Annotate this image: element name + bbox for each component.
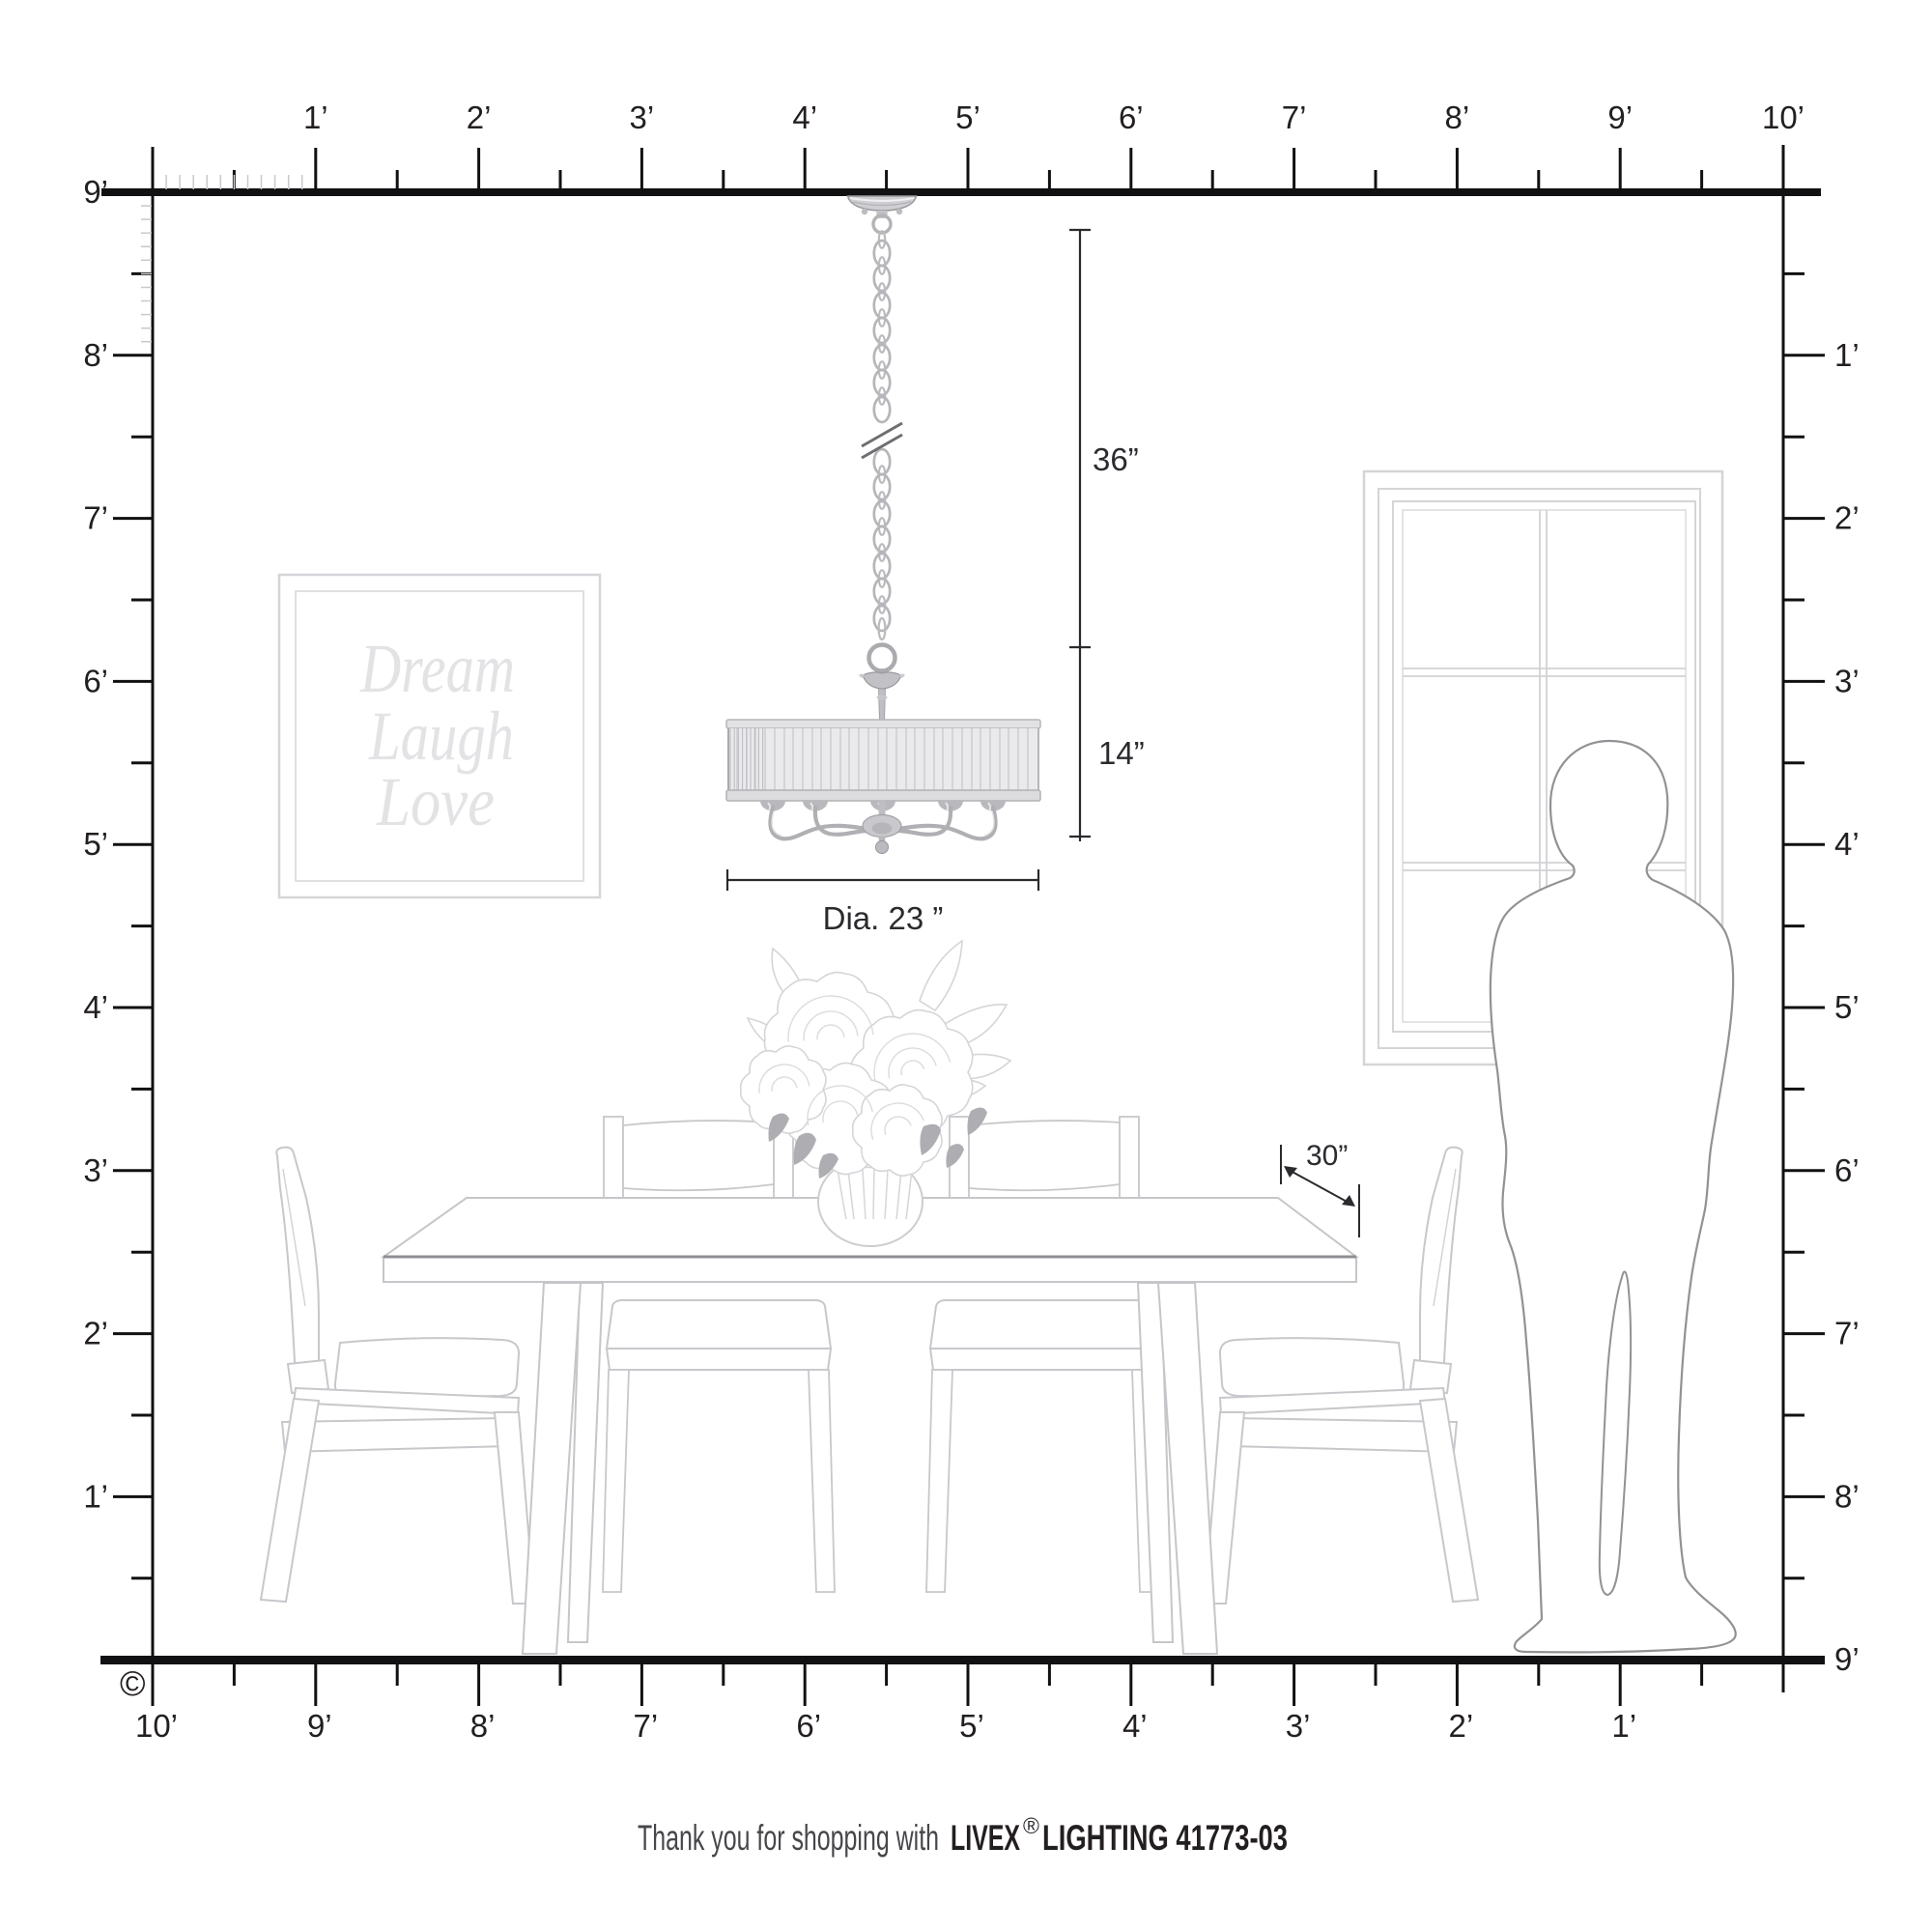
svg-text:LIVEX: LIVEX xyxy=(951,1818,1020,1858)
svg-text:4’: 4’ xyxy=(792,99,817,135)
svg-text:©: © xyxy=(120,1663,146,1703)
svg-text:6’: 6’ xyxy=(1119,99,1144,135)
svg-text:2’: 2’ xyxy=(83,1316,108,1351)
svg-text:9’: 9’ xyxy=(307,1708,332,1744)
svg-text:4’: 4’ xyxy=(1122,1708,1148,1744)
svg-text:7’: 7’ xyxy=(634,1708,659,1744)
svg-text:8’: 8’ xyxy=(1834,1478,1860,1514)
svg-text:3’: 3’ xyxy=(630,99,655,135)
svg-text:Dream: Dream xyxy=(359,630,515,707)
svg-text:1’: 1’ xyxy=(83,1478,108,1514)
svg-text:9’: 9’ xyxy=(83,174,108,210)
svg-text:Love: Love xyxy=(376,763,495,840)
svg-text:4’: 4’ xyxy=(1834,826,1860,862)
svg-text:6’: 6’ xyxy=(796,1708,821,1744)
svg-text:7’: 7’ xyxy=(1834,1316,1860,1351)
svg-text:4’: 4’ xyxy=(83,989,108,1025)
svg-text:1’: 1’ xyxy=(303,99,328,135)
svg-text:10’: 10’ xyxy=(1762,99,1804,135)
svg-text:Dia. 23 ”: Dia. 23 ” xyxy=(823,900,944,936)
svg-text:7’: 7’ xyxy=(83,500,108,536)
svg-text:6’: 6’ xyxy=(83,663,108,698)
svg-text:5’: 5’ xyxy=(83,826,108,862)
svg-text:5’: 5’ xyxy=(1834,989,1860,1025)
svg-text:14”: 14” xyxy=(1098,735,1145,771)
svg-text:3’: 3’ xyxy=(1286,1708,1311,1744)
svg-text:8’: 8’ xyxy=(1445,99,1470,135)
svg-text:1’: 1’ xyxy=(1611,1708,1636,1744)
svg-text:1’: 1’ xyxy=(1834,337,1860,373)
svg-text:10’: 10’ xyxy=(135,1708,178,1744)
svg-text:9’: 9’ xyxy=(1607,99,1633,135)
svg-text:5’: 5’ xyxy=(959,1708,984,1744)
svg-text:5’: 5’ xyxy=(955,99,980,135)
svg-text:3’: 3’ xyxy=(1834,663,1860,698)
svg-text:3’: 3’ xyxy=(83,1152,108,1188)
svg-text:6’: 6’ xyxy=(1834,1152,1860,1188)
svg-text:2’: 2’ xyxy=(1449,1708,1474,1744)
svg-text:36”: 36” xyxy=(1093,441,1139,477)
svg-text:8’: 8’ xyxy=(83,337,108,373)
svg-text:®: ® xyxy=(1023,1813,1039,1838)
svg-text:2’: 2’ xyxy=(1834,500,1860,536)
svg-text:2’: 2’ xyxy=(467,99,492,135)
svg-text:Thank you for shopping with: Thank you for shopping with xyxy=(638,1818,939,1858)
svg-text:30”: 30” xyxy=(1306,1140,1348,1172)
svg-text:7’: 7’ xyxy=(1282,99,1307,135)
svg-text:LIGHTING 41773-03: LIGHTING 41773-03 xyxy=(1042,1818,1288,1858)
svg-text:8’: 8’ xyxy=(470,1708,496,1744)
svg-text:9’: 9’ xyxy=(1834,1641,1860,1677)
